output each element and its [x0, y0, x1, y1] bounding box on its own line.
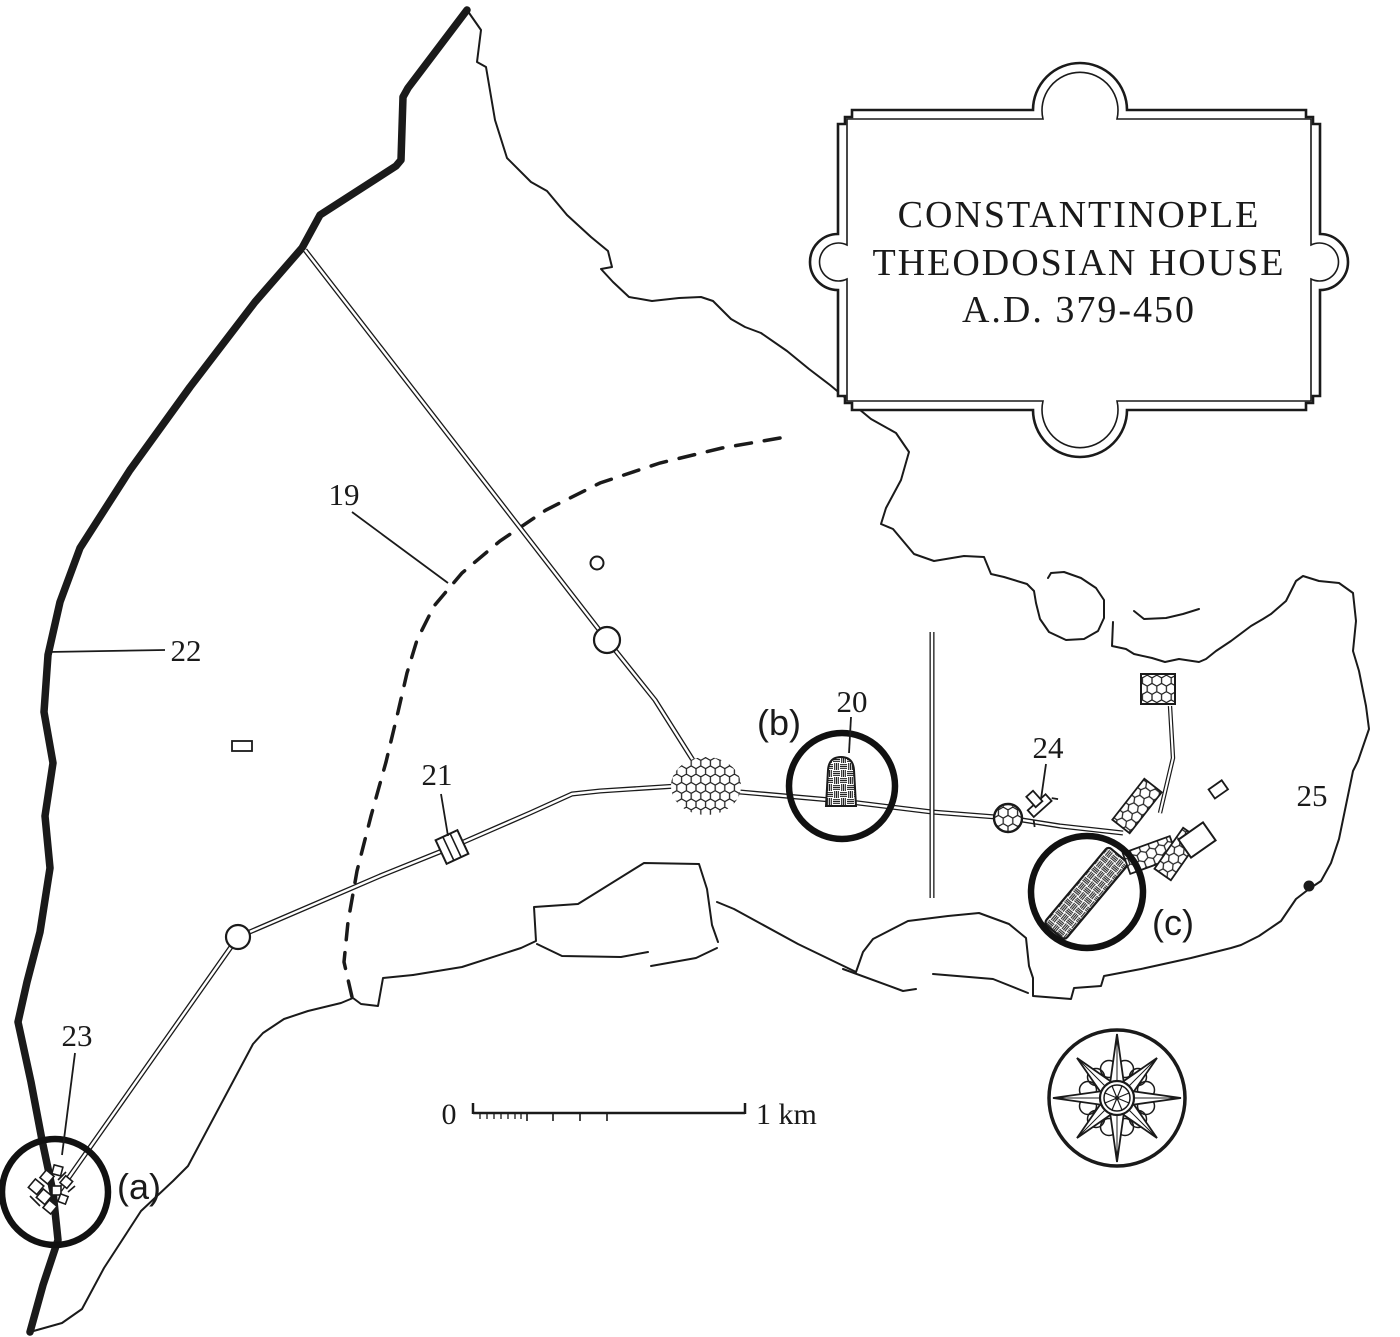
plain-building-east-2-rect — [1209, 780, 1228, 798]
leader-line-22 — [48, 650, 165, 652]
site-a-bldg — [58, 1194, 68, 1204]
structure-bar-c — [1044, 846, 1129, 940]
harbor-theodosius-breakwater-1 — [537, 944, 648, 957]
hex-building-square — [1141, 674, 1175, 704]
scale-bar — [473, 1103, 745, 1121]
label-a: (a) — [117, 1166, 161, 1207]
site-a-bldg — [52, 1186, 61, 1195]
road-junction-circle-west — [226, 925, 250, 949]
hex-bar-1-fill — [1112, 779, 1161, 834]
scale-label-km: 1 km — [756, 1098, 817, 1131]
site-a-buildings — [28, 1165, 75, 1214]
structure-bar-fill — [1044, 846, 1129, 940]
harbor-theodosius-outline — [413, 863, 718, 975]
site-a-bldg — [52, 1165, 63, 1176]
label-25: 25 — [1297, 778, 1328, 813]
leader-lines — [48, 512, 1046, 1155]
label-c: (c) — [1152, 902, 1194, 943]
forum-junction-hex-fill — [671, 757, 741, 815]
title-line-1: CONSTANTINOPLE — [898, 194, 1261, 236]
gate-21-symbol — [436, 830, 469, 864]
road-junction-circle-north — [594, 627, 620, 653]
title-line-3: A.D. 379-450 — [962, 289, 1196, 331]
gate-21-rect — [436, 830, 469, 864]
constantinian-wall-dashed — [344, 438, 780, 997]
leader-line-20 — [849, 717, 851, 753]
round-forum-symbol — [994, 804, 1022, 832]
map-page: 19 20 21 22 23 24 25 (a) (b) (c) CONSTAN… — [0, 0, 1400, 1337]
road-mese-west-inner — [60, 784, 708, 1190]
small-cistern-circle — [591, 557, 604, 570]
label-20: 20 — [837, 684, 868, 719]
hex-building-square-fill — [1141, 674, 1175, 704]
plain-building-east-2 — [1209, 780, 1228, 798]
hex-building-bar-1 — [1112, 779, 1161, 834]
coastline-between-harbors — [717, 902, 856, 972]
label-23: 23 — [62, 1018, 93, 1053]
compass-hub-dot — [1115, 1096, 1119, 1100]
theodosian-land-wall — [18, 10, 467, 1332]
constantinople-map: 19 20 21 22 23 24 25 (a) (b) (c) CONSTAN… — [0, 0, 1400, 1337]
label-22: 22 — [171, 633, 202, 668]
coast-structure-dot — [1304, 881, 1315, 892]
leader-line-19 — [352, 512, 448, 583]
round-forum-hex — [994, 804, 1022, 832]
label-19: 19 — [329, 477, 360, 512]
leader-line-21 — [441, 794, 448, 836]
road-north-branch-outer — [305, 250, 708, 784]
harbor-julian-breakwater-1 — [843, 969, 916, 991]
scale-label-zero: 0 — [442, 1098, 457, 1131]
harbor-julian-breakwater-2 — [933, 974, 1028, 993]
column-monument-fill — [826, 757, 856, 806]
title-cartouche: CONSTANTINOPLE THEODOSIAN HOUSE A.D. 379… — [810, 63, 1348, 457]
label-21: 21 — [422, 757, 453, 792]
west-small-building — [232, 741, 252, 751]
label-b: (b) — [757, 702, 801, 743]
column-monument-b — [826, 757, 856, 806]
label-24: 24 — [1033, 730, 1065, 765]
northeast-breakwater — [1134, 609, 1199, 619]
harbor-theodosius-breakwater-2 — [651, 948, 717, 966]
highlight-circles — [2, 733, 1143, 1245]
forum-junction-hexagons — [671, 757, 741, 815]
title-line-2: THEODOSIAN HOUSE — [872, 242, 1285, 284]
compass-rose — [1049, 1030, 1185, 1166]
road-mese-west-outer — [60, 784, 708, 1190]
